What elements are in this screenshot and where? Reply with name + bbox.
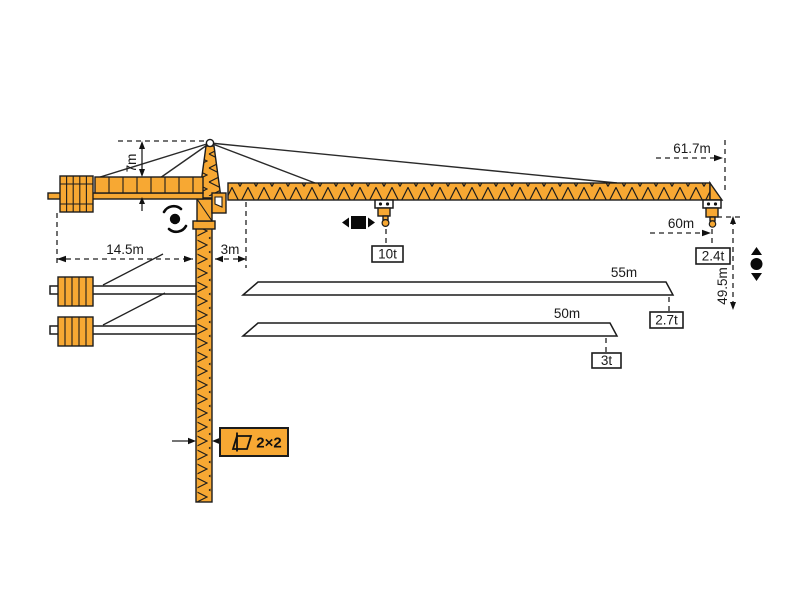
- tip-load-label: 2.4t: [702, 249, 725, 264]
- leader-line-50: [103, 293, 165, 325]
- jib-variant-50: 3t 50m: [243, 306, 621, 368]
- dim-tip-load: 2.4t: [696, 229, 730, 264]
- crane-diagram: 2.7t 55m 3t 50m 7m 14.5m 3m: [0, 0, 800, 600]
- dim-mast-section: 2×2: [172, 428, 288, 456]
- dim-radius-60: 60m: [650, 216, 711, 236]
- tip-load-50-label: 3t: [601, 353, 613, 368]
- counter-radius-label: 14.5m: [106, 242, 144, 257]
- jib-variant-55: 2.7t 55m: [243, 265, 683, 328]
- counterweight-main: [60, 176, 93, 212]
- trolley-travel-icon: [342, 216, 375, 229]
- jib-tip: [710, 183, 722, 200]
- slew-rotation-icon: [164, 206, 186, 232]
- jib-55-length-label: 55m: [611, 265, 637, 280]
- hook-height-label: 49.5m: [715, 267, 730, 305]
- trolley-tip: [703, 200, 721, 227]
- main-jib: [228, 183, 722, 200]
- hoist-icon: [751, 247, 763, 281]
- tower-mast: [193, 199, 215, 502]
- operator-cab: [212, 193, 226, 213]
- max-load-label: 10t: [378, 247, 397, 262]
- head-height-label: 7m: [124, 154, 139, 173]
- counterweight-variant-55: [50, 254, 196, 306]
- tip-load-55-label: 2.7t: [655, 313, 678, 328]
- dim-max-load: 10t: [372, 229, 403, 262]
- jib-50-length-label: 50m: [554, 306, 580, 321]
- mast-section-label: 2×2: [256, 435, 281, 452]
- max-radius-label: 61.7m: [673, 141, 711, 156]
- trolley-mid: [375, 200, 393, 226]
- offset-label: 3m: [221, 242, 240, 257]
- crane-diagram-svg: 2.7t 55m 3t 50m 7m 14.5m 3m: [0, 0, 800, 600]
- slewing-collar: [193, 221, 215, 229]
- tower-apex-pin: [206, 139, 213, 146]
- radius-60-label: 60m: [668, 216, 694, 231]
